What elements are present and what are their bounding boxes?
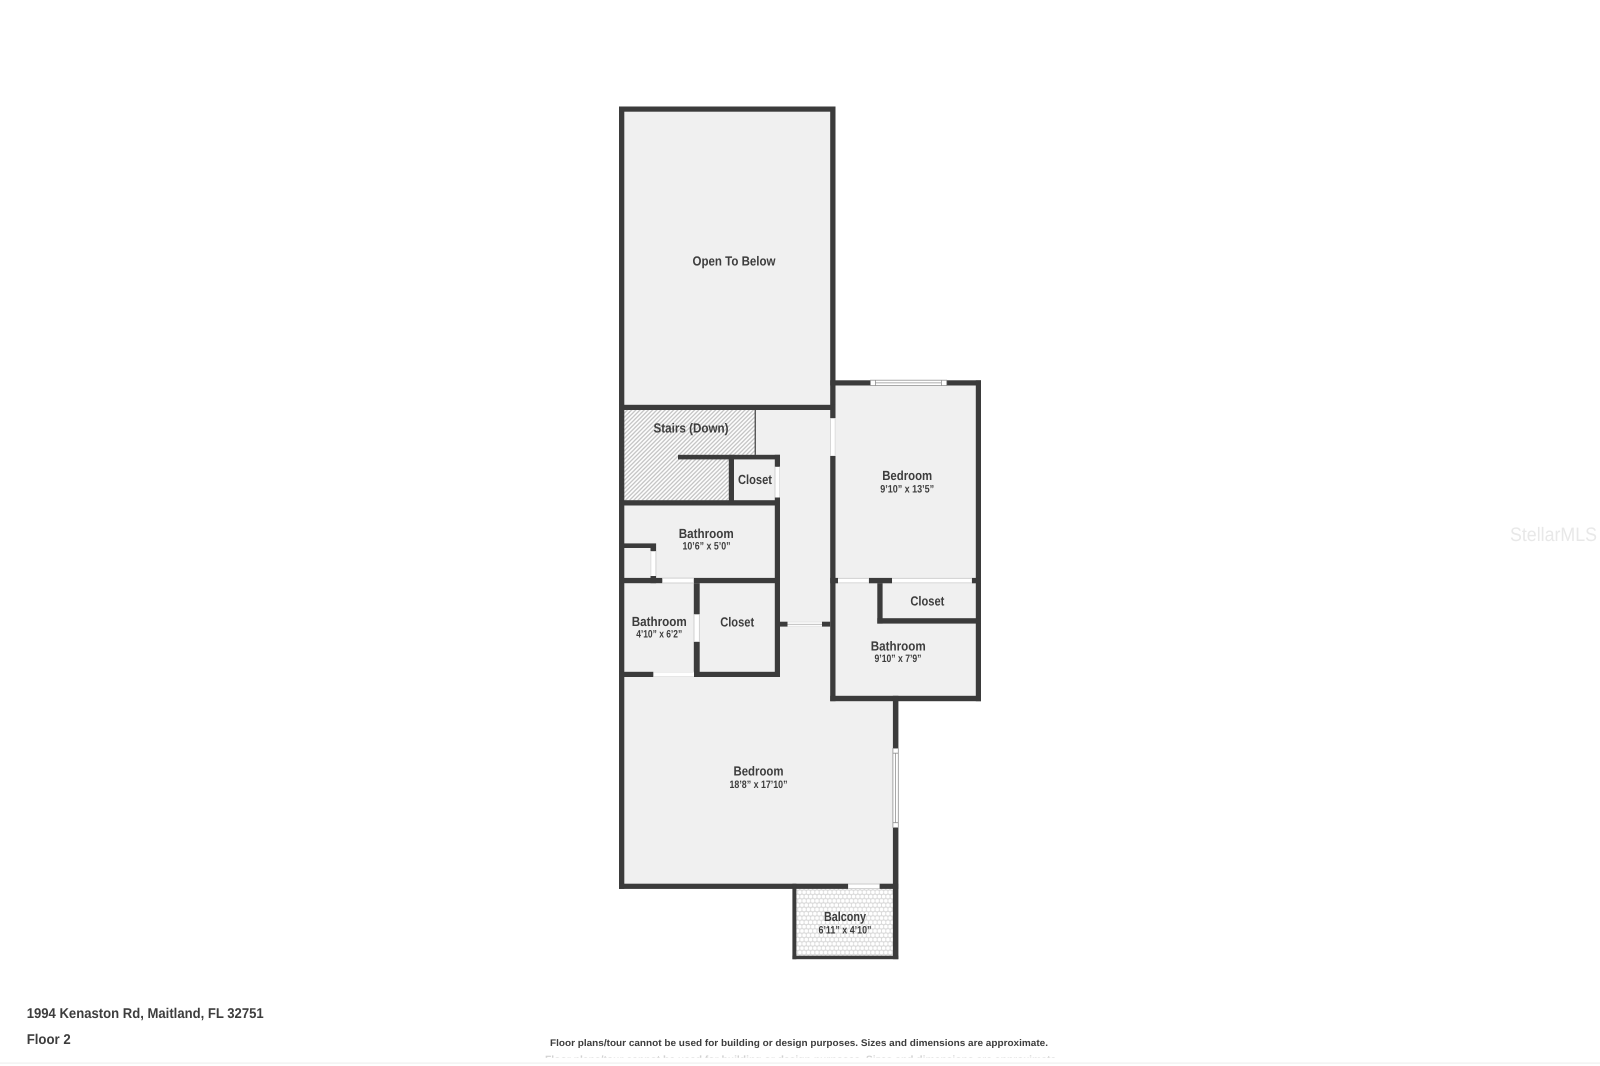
svg-text:Bedroom: Bedroom [882,468,932,483]
svg-text:6’11” x 4’10”: 6’11” x 4’10” [819,925,872,937]
svg-text:Bathroom: Bathroom [871,638,926,653]
svg-text:4’10” x 6’2”: 4’10” x 6’2” [636,629,682,641]
svg-text:Stairs (Down): Stairs (Down) [654,420,729,435]
svg-text:Closet: Closet [910,593,945,608]
svg-text:1994 Kenaston Rd, Maitland, FL: 1994 Kenaston Rd, Maitland, FL 32751 [27,1006,264,1022]
svg-text:9’10” x 7’9”: 9’10” x 7’9” [875,653,922,665]
svg-text:9’10” x 13’5”: 9’10” x 13’5” [880,484,934,496]
svg-text:Closet: Closet [720,615,755,630]
svg-text:Bathroom: Bathroom [632,614,687,629]
svg-text:10’6” x 5’0”: 10’6” x 5’0” [683,541,731,553]
svg-text:Balcony: Balcony [824,909,867,924]
svg-text:Floor plans/tour cannot be use: Floor plans/tour cannot be used for buil… [550,1038,1048,1049]
svg-text:Floor 2: Floor 2 [27,1032,71,1048]
svg-text:Bedroom: Bedroom [734,763,784,778]
svg-text:Closet: Closet [738,472,773,487]
svg-text:StellarMLS: StellarMLS [1510,524,1597,546]
svg-text:18’8” x 17’10”: 18’8” x 17’10” [730,779,788,791]
svg-text:Bathroom: Bathroom [679,526,734,541]
svg-text:Open To Below: Open To Below [693,253,777,268]
